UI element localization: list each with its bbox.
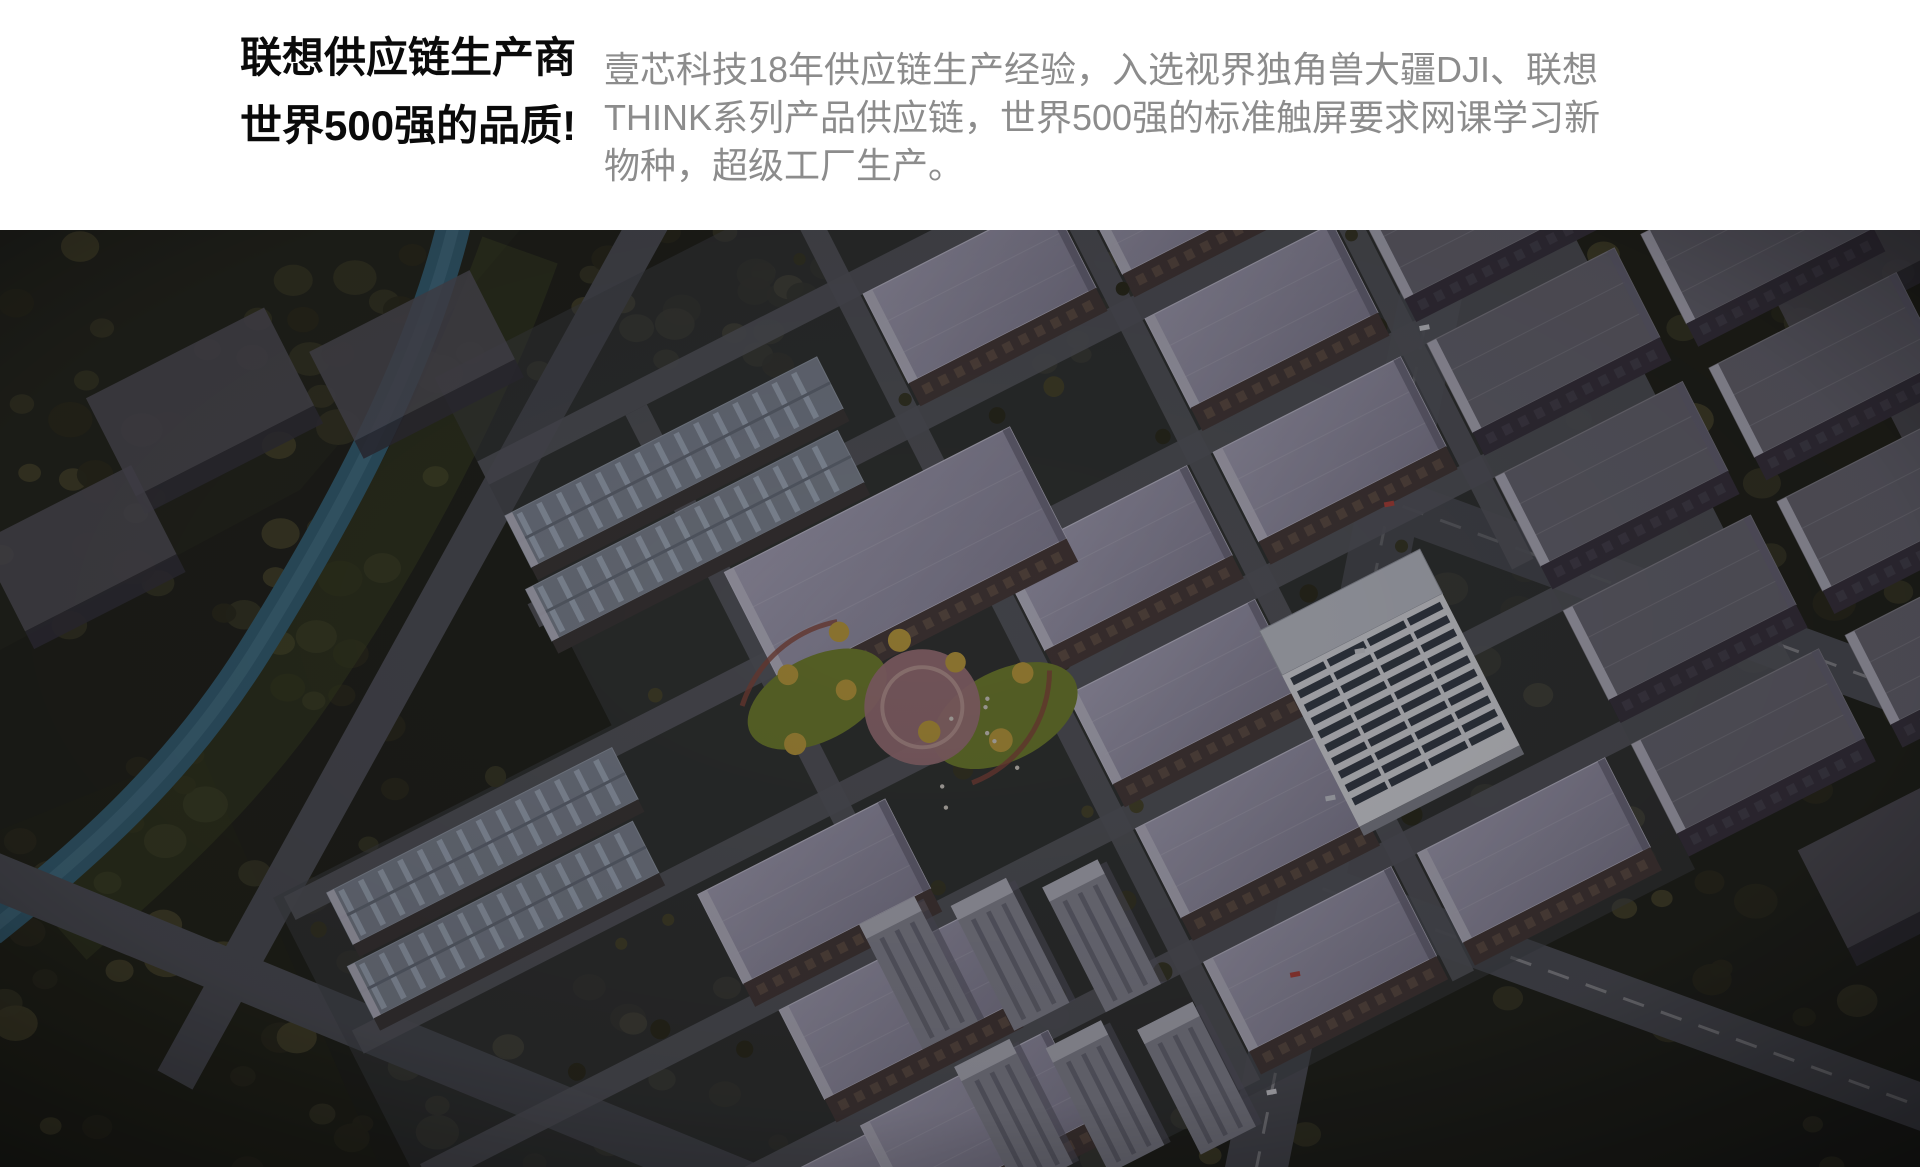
section-title: 联想供应链生产商 世界500强的品质! (240, 24, 576, 160)
page-header: 联想供应链生产商 世界500强的品质! 壹芯科技18年供应链生产经验，入选视界独… (0, 0, 1920, 230)
section-title-line1: 联想供应链生产商 (240, 24, 576, 92)
industrial-park-aerial-render (0, 230, 1920, 1167)
section-description-line2: THINK系列产品供应链，世界500强的标准触屏要求网课学习新 (604, 94, 1600, 142)
hero-image (0, 230, 1920, 1167)
section-description-line3: 物种，超级工厂生产。 (604, 142, 1600, 190)
section-description-line1: 壹芯科技18年供应链生产经验，入选视界独角兽大疆DJI、联想 (604, 46, 1600, 94)
section-description: 壹芯科技18年供应链生产经验，入选视界独角兽大疆DJI、联想 THINK系列产品… (604, 46, 1600, 190)
section-title-line2: 世界500强的品质! (240, 92, 576, 160)
